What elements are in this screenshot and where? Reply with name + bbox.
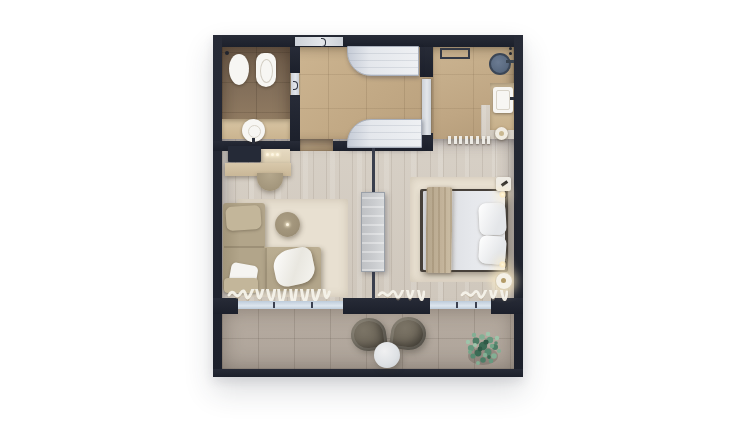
bedside-lamp-glow [498,260,507,269]
towel-bar [482,136,485,144]
vanity-sink [493,87,513,113]
towel-bar [454,136,457,144]
towel-bar [465,136,468,144]
bed-pillow [478,202,507,235]
floor-plan [213,35,523,377]
window-mullion [475,302,477,308]
balcony-side-table [374,342,400,368]
towel-bar [470,136,473,144]
screenshot-root: { "scene": { "type": "floor-plan-3d-rend… [0,0,754,435]
window-glass-right [430,301,491,309]
lamp-center [501,278,506,283]
sheer-curtain-living [227,289,345,301]
vanity-sink-basin [496,90,510,110]
vanity-faucet-icon [510,97,514,100]
washbasin-faucet-icon [252,138,255,144]
wall-east [514,35,523,377]
ceiling-spot-icon [225,51,229,55]
bathroom-stool [495,127,508,140]
shower-arm [506,60,514,63]
stool-center [499,131,504,136]
closet-east-wall-upper [420,47,433,77]
wall-west [213,35,222,377]
potted-plant [461,326,507,372]
wardrobe-top [347,46,419,76]
wardrobe-bottom [347,119,422,148]
sheer-curtain-bedroom-left [377,290,425,301]
sheer-curtain-bedroom-right [460,290,508,301]
washbasin-bowl [248,125,261,138]
shower-head-icon [489,53,511,75]
desk-light-dot [271,153,274,156]
bathroom-wall-shelf [440,48,470,59]
coffee-table-candle [286,223,289,226]
nightstand-item [501,180,508,186]
shower-control-dot [509,47,512,50]
towel-bar [459,136,462,144]
coffee-table [275,212,300,237]
towel-radiator [448,136,494,145]
bidet-bowl [260,59,273,83]
window-glass-left [222,301,343,309]
hall-passage-floor [300,139,333,151]
bed-runner-throw [426,187,453,273]
bathroom-sliding-door [422,79,431,135]
towel-bar [487,136,490,144]
bedside-lamp-glow [498,190,507,199]
window-mullion [273,302,275,308]
wc-east-wall-upper [290,47,300,73]
towel-bar [448,136,451,144]
sofa-pillow [225,205,262,231]
window-mullion [456,302,458,308]
desk-light-dot [266,153,269,156]
entrance-door [295,37,343,46]
shower-control-dot [509,52,512,55]
bidet [256,53,276,87]
wc-east-wall-lower [290,95,300,143]
nightstand [496,177,511,191]
sofa-seam [224,246,264,248]
sofa-seam [265,248,267,290]
partition-sliding-panel [361,192,385,272]
window-mullion [311,302,313,308]
towel-bar [476,136,479,144]
bedside-lamp [495,272,513,290]
desk-light-dot [276,153,279,156]
tv-console [228,146,261,162]
